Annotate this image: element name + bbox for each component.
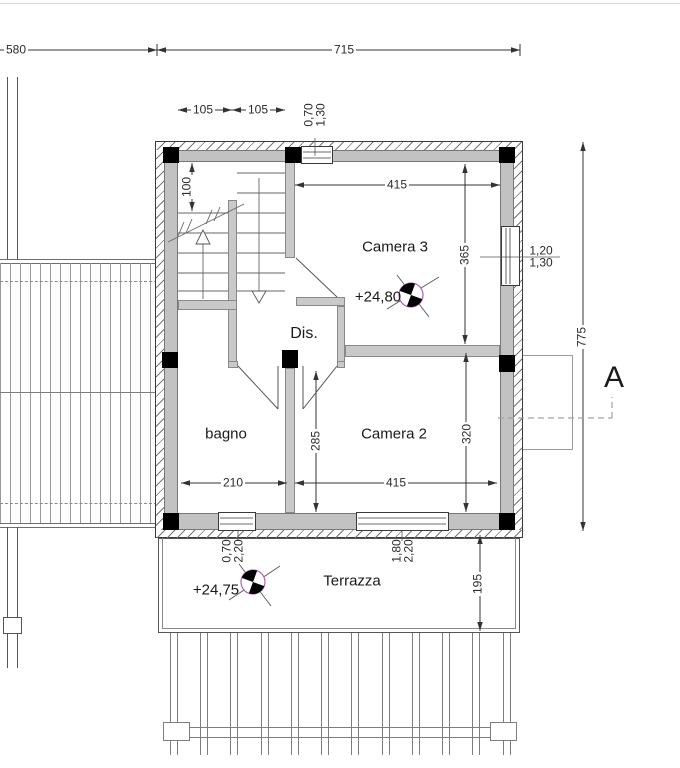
dim-landing-depth: 100 — [181, 175, 194, 199]
room-label-terrazza: Terrazza — [323, 574, 381, 589]
level-value-camera3: +24,80 — [355, 290, 401, 305]
door-swings — [238, 258, 337, 409]
dim-camera2-width: 415 — [384, 477, 408, 490]
opening-top-window-height: 1,30 — [315, 103, 328, 126]
dim-plan-height: 775 — [576, 325, 589, 349]
dim-stair-bay-left: 105 — [191, 104, 215, 117]
room-label-camera3: Camera 3 — [362, 240, 428, 255]
level-value-terrazza: +24,75 — [193, 583, 239, 598]
room-label-dis: Dis. — [290, 326, 318, 342]
opening-terrace-door-height: 2,20 — [403, 539, 416, 562]
room-label-camera2: Camera 2 — [361, 427, 427, 442]
dim-plan-width: 715 — [332, 44, 356, 57]
linework-layer — [0, 0, 680, 768]
dim-dis-depth: 285 — [310, 429, 323, 453]
dim-camera3-width: 415 — [385, 179, 409, 192]
section-marker-label: A — [604, 361, 624, 395]
dim-stair-bay-right: 105 — [246, 104, 270, 117]
dim-camera2-depth: 320 — [461, 422, 474, 446]
floor-plan-canvas: trovacasa — [0, 0, 680, 768]
dim-bagno-width: 210 — [221, 477, 245, 490]
opening-right-window-height: 1,30 — [529, 257, 552, 270]
dim-terrace-depth: 195 — [472, 572, 485, 596]
dim-camera3-depth: 365 — [459, 243, 472, 267]
room-label-bagno: bagno — [205, 427, 247, 442]
opening-bagno-door-height: 2,20 — [233, 539, 246, 562]
section-cut-line — [498, 397, 612, 418]
dim-left-overall: 580 — [4, 44, 28, 57]
